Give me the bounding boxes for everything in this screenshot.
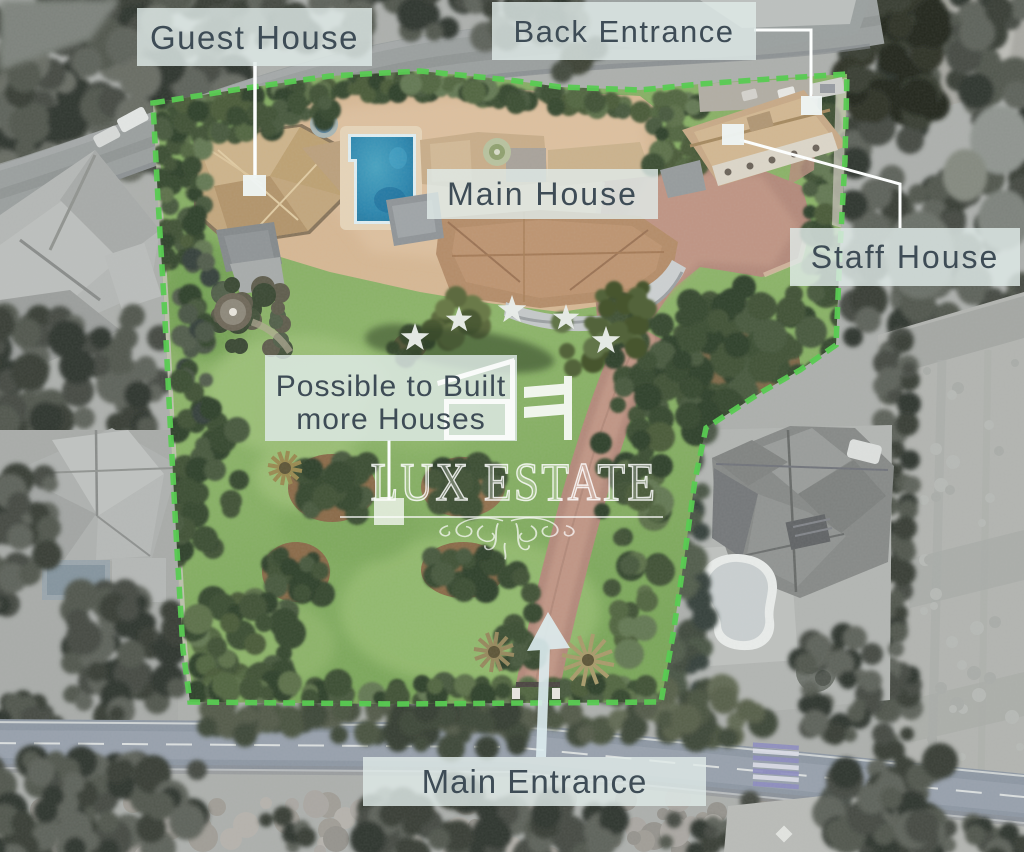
svg-text:Staff House: Staff House xyxy=(811,239,1000,275)
svg-text:LUX ESTATE: LUX ESTATE xyxy=(371,452,658,512)
svg-text:Main House: Main House xyxy=(447,176,638,212)
svg-text:Main Entrance: Main Entrance xyxy=(422,763,648,800)
svg-text:more Houses: more Houses xyxy=(296,403,485,436)
svg-text:Guest House: Guest House xyxy=(150,19,359,56)
svg-text:Back Entrance: Back Entrance xyxy=(513,14,734,49)
svg-text:Possible to Built: Possible to Built xyxy=(276,370,506,403)
